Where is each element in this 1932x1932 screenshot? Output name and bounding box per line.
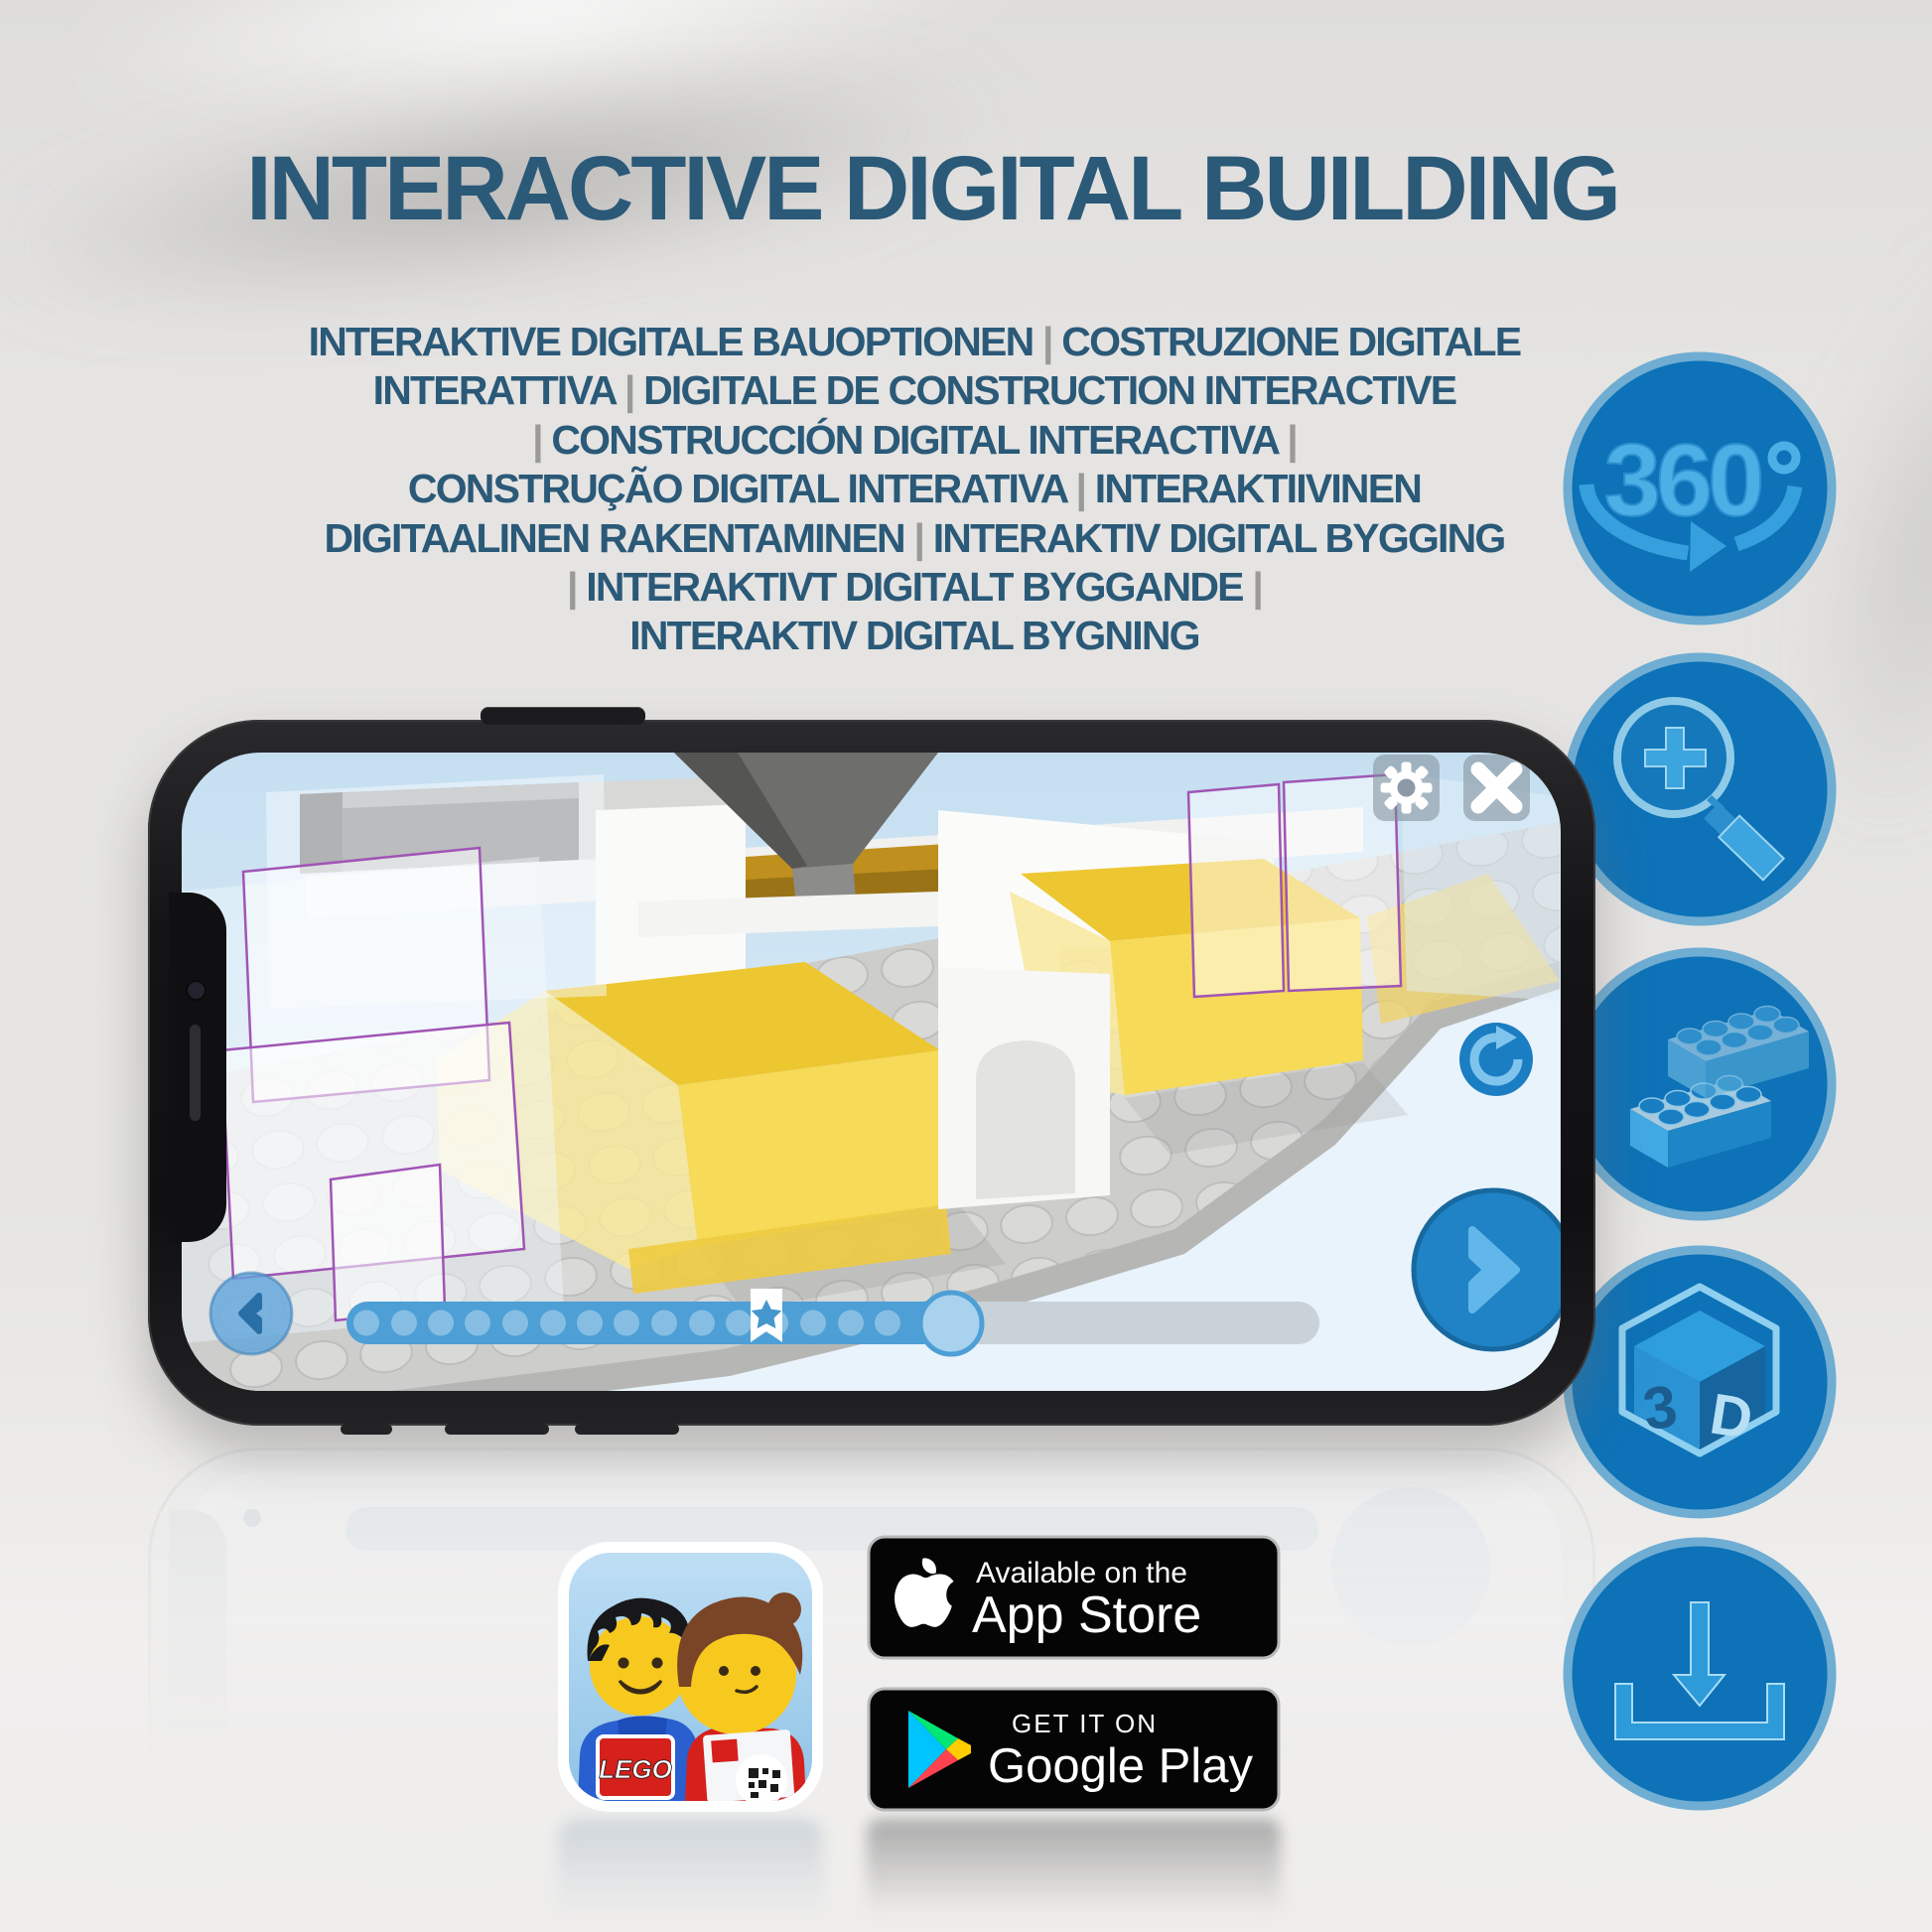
svg-text:360: 360 xyxy=(1604,423,1762,537)
